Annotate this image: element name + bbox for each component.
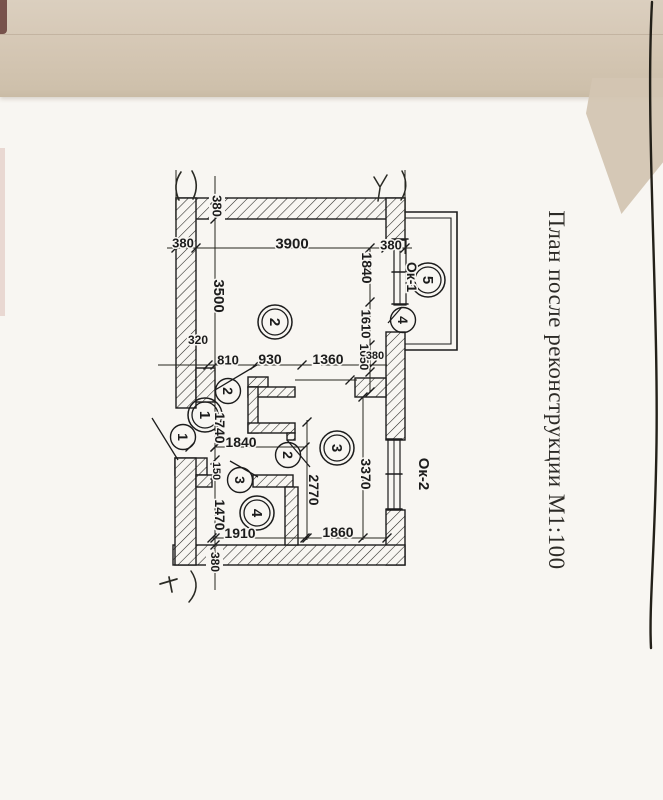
marker-number: 1: [196, 411, 213, 419]
scan-pencil-mark: [160, 579, 177, 584]
door-leaf-line: [152, 418, 178, 460]
dimension-label: 380: [380, 238, 402, 253]
dimension-label: 1610: [358, 310, 373, 339]
marker-number: 3: [328, 444, 345, 452]
marker-number: 5: [419, 276, 436, 284]
scanned-page: 1234512234380390038038035003208109301360…: [0, 0, 663, 800]
wall-segment: [253, 475, 293, 487]
wall-segment: [386, 332, 405, 440]
wall-segment: [287, 433, 295, 440]
drawing-title: План после реконструкции М1:100: [535, 194, 577, 586]
dimension-label: 320: [188, 333, 208, 347]
dimension-label: 380: [172, 236, 194, 251]
dimension-label: 930: [258, 351, 282, 367]
scan-pencil-mark: [176, 172, 181, 200]
dimension-label: 3500: [210, 279, 227, 312]
dimension-label: 150: [210, 462, 222, 480]
dimension-label: 380: [209, 195, 224, 217]
window-label: Ок-1: [404, 262, 420, 293]
wall-segment: [175, 458, 196, 565]
dimension-label: 1360: [312, 351, 343, 367]
marker-number: 2: [266, 318, 283, 326]
scan-pencil-mark: [374, 175, 387, 187]
wall-segment: [248, 377, 268, 387]
marker-number: 2: [280, 451, 296, 459]
wall-segment: [386, 198, 405, 240]
wall-segment: [248, 423, 295, 433]
dimension-label: 3900: [275, 235, 308, 252]
scan-pencil-mark: [189, 571, 196, 602]
dimension-label: 1910: [224, 525, 255, 541]
scan-pencil-mark: [169, 577, 172, 592]
marker-number: 4: [248, 509, 265, 518]
wall-segment: [176, 198, 196, 408]
dimension-label: 810: [217, 353, 239, 368]
window-label: Ок-2: [415, 458, 432, 491]
scan-pencil-mark: [192, 171, 196, 199]
marker-number: 2: [220, 387, 236, 395]
dimension-label: 1860: [322, 524, 353, 540]
wall-segment: [196, 368, 215, 402]
scan-pencil-mark: [650, 2, 657, 648]
dimension-label: 3370: [358, 458, 374, 489]
wall-segment: [196, 475, 212, 487]
wall-segment: [285, 487, 298, 545]
marker-number: 3: [232, 476, 248, 484]
dimension-label: 380: [366, 350, 384, 362]
marker-number: 4: [395, 316, 411, 324]
marker-number: 1: [175, 433, 191, 441]
dimension-label: 1840: [225, 434, 256, 450]
dimension-label: 1840: [359, 252, 375, 283]
dimension-label: 2770: [306, 474, 322, 505]
dimension-label: 380: [208, 552, 222, 572]
